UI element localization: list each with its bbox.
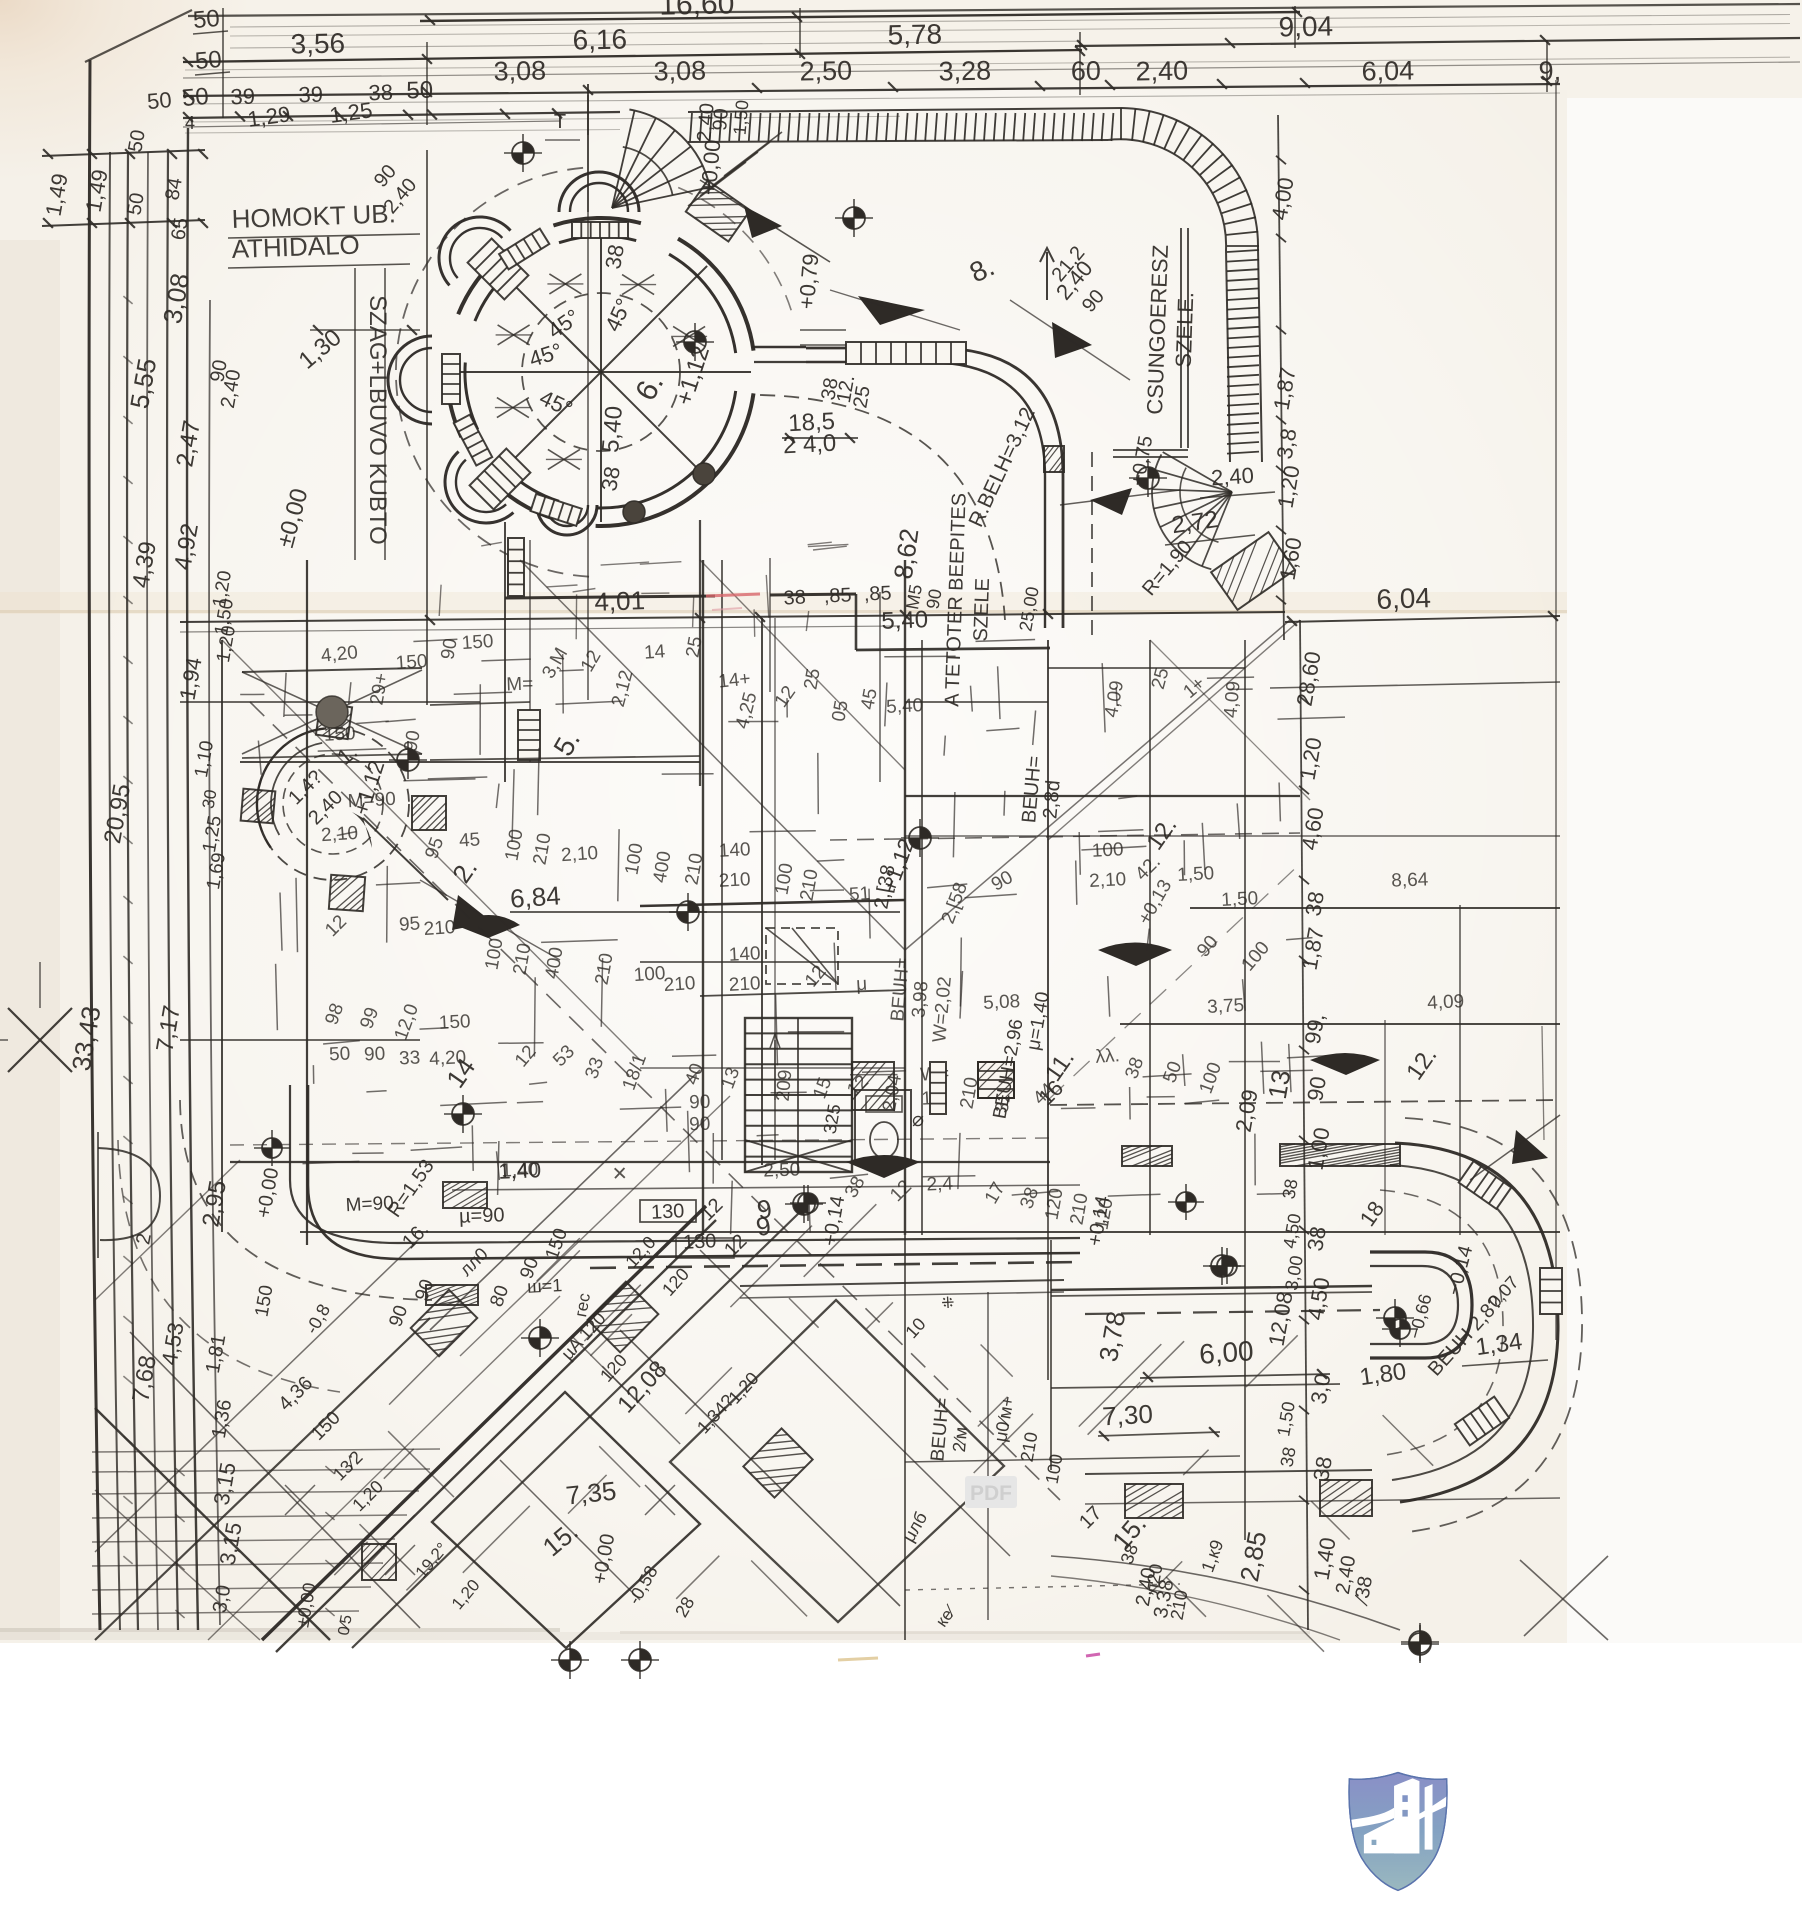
svg-text:30: 30 [199,788,221,810]
svg-text:4: 4 [185,113,195,133]
svg-text:4,09: 4,09 [1427,991,1465,1014]
svg-text:38: 38 [783,586,806,609]
svg-text:38: 38 [1302,1224,1331,1252]
svg-text:4,01: 4,01 [594,585,646,617]
svg-text:3,0: 3,0 [1306,1371,1336,1405]
svg-text:1,40: 1,40 [498,1157,542,1183]
svg-text:6,00: 6,00 [1198,1335,1255,1370]
svg-text:140: 140 [718,839,751,862]
svg-text:2,40: 2,40 [1135,56,1188,87]
svg-text:9,04: 9,04 [1278,11,1333,43]
svg-text:100: 100 [1091,839,1124,862]
svg-text:0⁄5: 0⁄5 [335,1614,355,1637]
svg-text:90: 90 [1302,1074,1331,1102]
svg-text:210: 210 [718,869,751,892]
svg-text:SZAG+LBUVO KUBTO: SZAG+LBUVO KUBTO [364,295,391,545]
svg-text:38: 38 [600,242,629,270]
svg-text:HOMOKT UB.: HOMOKT UB. [231,198,396,234]
svg-text:16,60: 16,60 [659,0,735,22]
svg-text:130: 130 [682,1230,716,1254]
svg-text:38: 38 [596,464,625,492]
svg-text:2 4,0: 2 4,0 [782,430,837,460]
svg-text:5,78: 5,78 [887,19,942,51]
svg-text:130: 130 [650,1200,684,1224]
svg-text:2,50: 2,50 [763,1159,801,1181]
svg-text:7,35: 7,35 [564,1475,617,1510]
svg-text:3,75: 3,75 [1207,995,1245,1018]
svg-text:6,04: 6,04 [1376,582,1432,615]
svg-text:2,50: 2,50 [799,56,852,87]
svg-text:9,: 9, [1538,56,1561,86]
svg-text:140: 140 [728,943,761,966]
svg-text:+0,79: +0,79 [794,253,824,311]
svg-text:3,8: 3,8 [1272,426,1302,460]
svg-text:99,: 99, [1300,1011,1330,1045]
svg-text:05: 05 [828,699,852,723]
svg-text:4,20: 4,20 [320,642,359,667]
svg-text:,85: ,85 [863,582,892,605]
svg-text:25: 25 [849,384,875,410]
svg-text:45: 45 [458,829,481,851]
svg-text:1,50: 1,50 [1177,863,1215,886]
svg-text:2,40: 2,40 [1210,463,1254,491]
svg-text:+0,00: +0,00 [696,139,726,197]
svg-text:150: 150 [395,651,428,674]
svg-text:210: 210 [423,917,456,940]
svg-text:50: 50 [194,46,223,75]
svg-text:25: 25 [682,635,706,659]
svg-text:38: 38 [1300,889,1329,917]
svg-text:38: 38 [1279,1177,1302,1200]
svg-text:3,08: 3,08 [653,56,706,87]
svg-text:150: 150 [438,1011,471,1034]
svg-text:6,84: 6,84 [509,880,562,913]
svg-text:2,10: 2,10 [1089,869,1127,892]
svg-text:SZELE.: SZELE. [1171,291,1199,368]
svg-text:50: 50 [192,5,221,34]
svg-text:8,64: 8,64 [1391,869,1429,891]
svg-text:µ=90: µ=90 [459,1204,505,1228]
svg-text:84: 84 [161,176,187,202]
svg-text:5,40: 5,40 [886,695,924,718]
svg-text:95: 95 [398,913,421,935]
svg-text:7,30: 7,30 [1101,1399,1153,1432]
svg-text:50: 50 [124,128,150,154]
svg-text:1,50: 1,50 [730,99,753,136]
svg-text:50: 50 [146,87,173,114]
svg-text:50: 50 [123,191,149,217]
svg-text:65: 65 [167,216,193,242]
svg-text:60: 60 [1071,56,1102,87]
svg-text:38: 38 [1308,1454,1337,1482]
svg-text:3,98: 3,98 [908,980,932,1019]
svg-text:T: T [554,111,566,133]
svg-text:209: 209 [773,1069,797,1102]
svg-text:2,8d: 2,8d [1039,779,1064,820]
svg-text:33: 33 [399,1047,421,1069]
svg-text:150: 150 [461,631,494,654]
svg-text:3,28: 3,28 [938,56,991,87]
svg-text:3,56: 3,56 [290,28,345,60]
svg-text:3,08: 3,08 [493,56,546,87]
svg-text:100: 100 [633,963,666,986]
svg-text:5,40: 5,40 [597,405,628,454]
svg-text:2⁄м: 2⁄м [949,1426,971,1453]
svg-text:14+: 14+ [717,668,751,692]
svg-text:SZELE: SZELE [970,578,994,642]
svg-text:90: 90 [689,1092,711,1114]
svg-text:38: 38 [368,80,393,106]
svg-text:90: 90 [364,1043,386,1065]
svg-text:6,16: 6,16 [572,24,627,56]
svg-text:✕: ✕ [611,1164,628,1186]
svg-text:4,20: 4,20 [429,1047,467,1070]
svg-text:38: 38 [1277,1445,1300,1468]
svg-text:14: 14 [643,641,666,663]
svg-text:50: 50 [181,83,210,112]
svg-text:210: 210 [728,973,761,996]
svg-text:50: 50 [329,1043,351,1065]
svg-text:⌀: ⌀ [912,1109,924,1131]
svg-text:50: 50 [406,77,434,105]
svg-text:ATHIDALO: ATHIDALO [231,230,360,264]
svg-text:PDF: PDF [970,1482,1012,1505]
svg-text:45: 45 [857,687,881,711]
svg-text:51: 51 [848,883,871,905]
svg-text:2,40: 2,40 [693,102,718,143]
svg-text:λλ.: λλ. [1095,1045,1121,1068]
svg-text:25: 25 [800,667,824,691]
svg-text:5,08: 5,08 [983,991,1021,1014]
svg-text:,85: ,85 [823,584,852,607]
svg-text:210: 210 [663,973,696,996]
svg-text:2,10: 2,10 [560,843,598,867]
svg-text:M=90: M=90 [345,1193,394,1216]
